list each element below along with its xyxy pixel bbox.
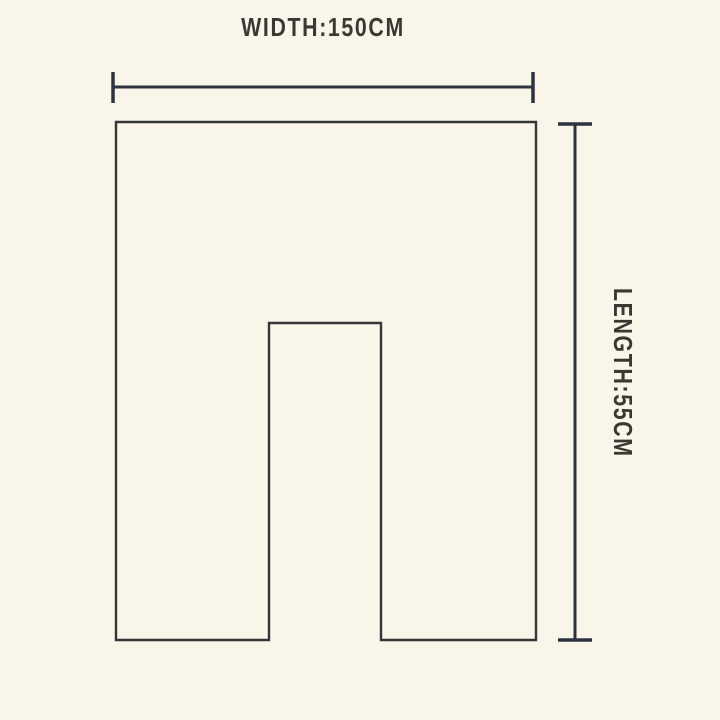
length-dimension-label: LENGTH:55CM [610,288,636,458]
u-shape-panel-outline [116,122,536,640]
diagram-page: WIDTH:150CM LENGTH:55CM [0,0,720,720]
length-dimension-line [558,124,592,640]
width-dimension-label: WIDTH:150CM [151,14,495,40]
width-dimension-line [113,72,533,103]
